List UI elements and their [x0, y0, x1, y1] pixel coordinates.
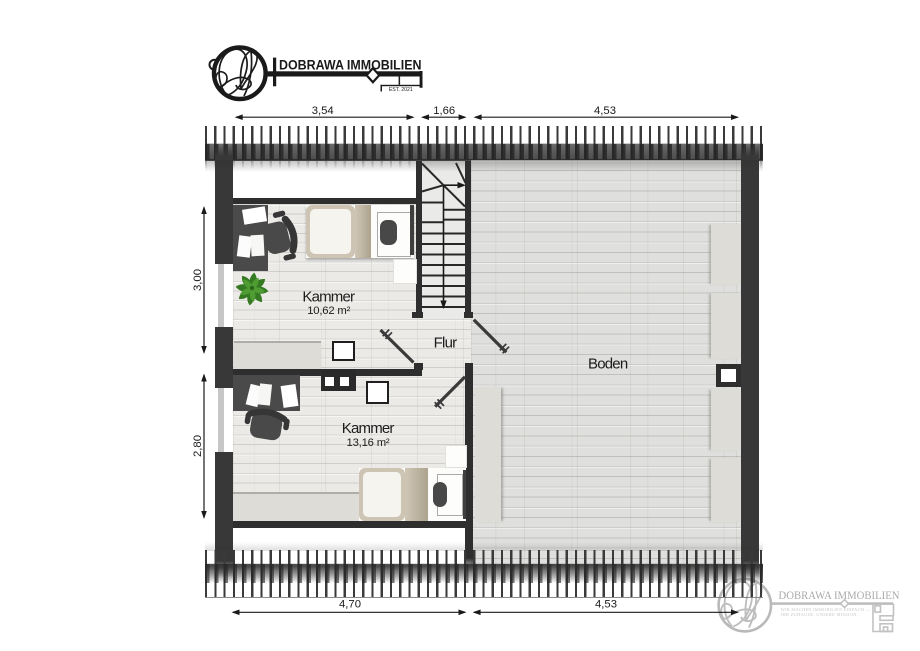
svg-text:4,53: 4,53	[595, 598, 617, 610]
svg-text:Kammer: Kammer	[342, 420, 395, 437]
svg-text:1,66: 1,66	[433, 105, 455, 117]
svg-text:3,54: 3,54	[312, 105, 334, 117]
svg-text:4,53: 4,53	[594, 105, 616, 117]
svg-text:Flur: Flur	[434, 335, 457, 352]
svg-text:2,80: 2,80	[192, 435, 204, 457]
svg-text:DOBRAWA IMMOBILIEN: DOBRAWA IMMOBILIEN	[279, 58, 422, 74]
svg-text:EST. 2021: EST. 2021	[389, 87, 413, 93]
svg-text:4,70: 4,70	[339, 598, 361, 610]
svg-text:3,00: 3,00	[192, 269, 204, 291]
svg-text:Boden: Boden	[588, 356, 628, 373]
svg-text:13,16 m²: 13,16 m²	[347, 437, 390, 449]
svg-text:10,62 m²: 10,62 m²	[307, 305, 350, 317]
svg-text:Kammer: Kammer	[302, 289, 355, 306]
